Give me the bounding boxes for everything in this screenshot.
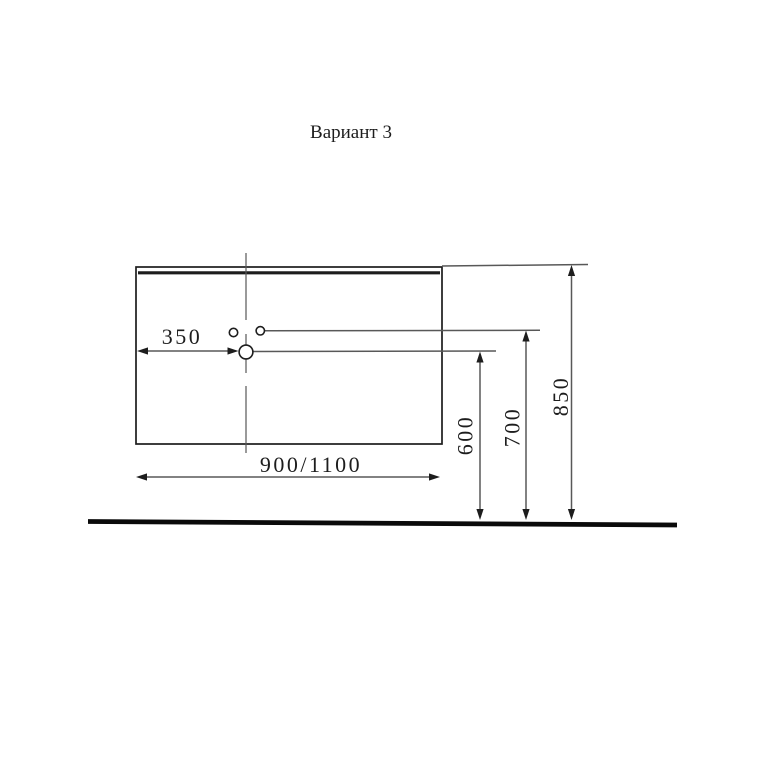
cabinet-outline bbox=[136, 267, 442, 444]
dim-350-label: 350 bbox=[162, 324, 203, 349]
dim-850: 850 bbox=[548, 265, 575, 520]
dim-900-1100-arrow-left bbox=[136, 473, 147, 480]
dim-350-arrow-left bbox=[137, 347, 148, 354]
dim-700-arrow-top bbox=[522, 331, 529, 342]
dim-700-arrow-bottom bbox=[522, 509, 529, 520]
hole-small-left bbox=[229, 328, 237, 336]
dim-900-1100: 900/1100 bbox=[136, 452, 440, 481]
hole-leader-line bbox=[265, 330, 540, 331]
dim-600: 600 bbox=[453, 352, 484, 521]
dim-350: 350 bbox=[137, 324, 239, 355]
top-extension-line bbox=[442, 265, 588, 267]
dim-850-arrow-top bbox=[568, 265, 575, 276]
dim-700-label: 700 bbox=[500, 407, 525, 448]
hole-faucet-large bbox=[239, 345, 253, 359]
dim-600-label: 600 bbox=[453, 415, 478, 456]
faucet-leader-line bbox=[253, 351, 496, 352]
dim-900-1100-arrow-right bbox=[429, 473, 440, 480]
diagram-page: Вариант 3 350 900/1100 bbox=[0, 0, 768, 768]
floor-line bbox=[88, 522, 677, 526]
dimension-drawing: 350 900/1100 600 700 850 bbox=[0, 0, 768, 768]
dim-350-arrow-right bbox=[228, 347, 239, 354]
dim-850-arrow-bottom bbox=[568, 509, 575, 520]
hole-small-right bbox=[256, 327, 264, 335]
dim-700: 700 bbox=[500, 331, 530, 521]
dim-850-label: 850 bbox=[548, 376, 573, 417]
dim-900-1100-label: 900/1100 bbox=[260, 452, 362, 477]
dim-600-arrow-bottom bbox=[476, 509, 483, 520]
dim-600-arrow-top bbox=[476, 352, 483, 363]
